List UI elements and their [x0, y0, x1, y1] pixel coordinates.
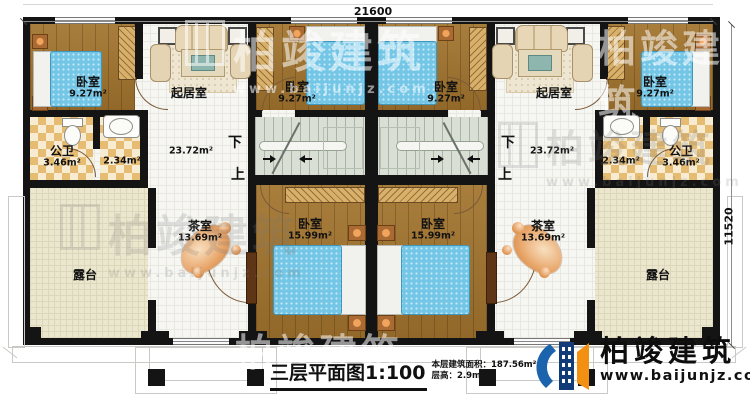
room-area-bedroom-large: 15.99m² — [411, 231, 455, 241]
stair-landing — [323, 127, 363, 169]
brand-block: 柏竣建筑 www.baijunjz.com — [536, 336, 750, 398]
armchair — [572, 44, 593, 82]
wall-pillar — [476, 331, 504, 345]
dimension-right-value: 11520 — [723, 202, 736, 252]
side-table — [566, 27, 585, 45]
title-block: 三层平面图1:100 本层建筑面积：187.56m² 层高：2.9m — [270, 358, 536, 391]
stair-label-up: 上 — [498, 168, 512, 182]
decor-pebble — [502, 245, 512, 255]
armchair — [230, 44, 251, 79]
room-area-bedroom-small-2: 9.27m² — [427, 94, 465, 104]
wall-bath-divider — [93, 117, 100, 149]
plan-area-note: 本层建筑面积：187.56m² — [431, 360, 536, 371]
room-label-bedroom-small: 卧室 — [643, 76, 667, 88]
wall-bedroom2-bottom-a — [248, 110, 262, 117]
stair-label-up: 上 — [231, 168, 245, 182]
stair-arrow-tail — [263, 158, 273, 160]
stair-arrow-tail — [302, 158, 312, 160]
room-label-bedroom-small-2: 卧室 — [434, 81, 458, 93]
armchair — [492, 44, 513, 79]
room-area-bedroom-small: 9.27m² — [636, 89, 674, 99]
room-area-bedroom-small: 9.27m² — [69, 89, 107, 99]
nightstand — [377, 315, 395, 331]
wall-bath-divider — [643, 117, 650, 149]
sink-basin — [610, 118, 634, 135]
brand-logo-glyph — [536, 336, 596, 398]
decor-pebble — [193, 267, 204, 278]
sink-basin — [109, 118, 133, 135]
nightstand — [377, 225, 395, 241]
side-table — [496, 27, 515, 45]
wall-bedroom-living — [600, 24, 608, 79]
stair-label-down: 下 — [228, 136, 242, 150]
stair-label-down: 下 — [501, 136, 515, 150]
room-area-tea: 13.69m² — [178, 233, 222, 243]
room-area-living: 23.72m² — [530, 146, 574, 156]
unit-left: 卧室 9.27m² 卧室 9.27m² 起居室 23.72m² 下 上 公卫 3… — [23, 17, 375, 345]
wall-pillar — [141, 331, 169, 345]
room-area-bedroom-small-2: 9.27m² — [278, 94, 316, 104]
bed — [273, 245, 342, 315]
brand-name: 柏竣建筑 — [600, 336, 750, 368]
wardrobe — [469, 27, 487, 91]
decor-pebble — [539, 267, 550, 278]
door-leaf — [246, 252, 257, 304]
wall-washroom-living — [140, 110, 148, 188]
unit-right: 卧室 9.27m² 卧室 9.27m² 起居室 23.72m² 下 上 公卫 3… — [368, 17, 720, 345]
room-label-bedroom-large: 卧室 — [298, 218, 322, 230]
room-area-washroom: 2.34m² — [602, 156, 640, 166]
nightstand — [289, 26, 305, 41]
dimension-line-top — [23, 21, 713, 22]
floor-plan-canvas: 卧室 9.27m² 卧室 9.27m² 起居室 23.72m² 下 上 公卫 3… — [0, 0, 750, 407]
nightstand — [695, 34, 711, 49]
wardrobe — [378, 187, 458, 203]
wall-tea-bedroom-upper — [248, 185, 256, 252]
bed-pillows — [377, 245, 403, 315]
room-label-bath: 公卫 — [50, 145, 74, 157]
eave-outline-left — [8, 196, 25, 348]
bed — [401, 245, 470, 315]
door-leaf — [486, 252, 497, 304]
wall-bedroom2-bottom-b — [378, 110, 448, 117]
nightstand — [32, 34, 48, 49]
side-table — [228, 27, 247, 45]
room-area-bath: 3.46m² — [662, 158, 700, 168]
wall-terrace-tea-upper — [587, 188, 595, 248]
wardrobe — [285, 187, 365, 203]
stair-arrow-tail — [431, 158, 441, 160]
room-label-bedroom-large: 卧室 — [421, 218, 445, 230]
wall-bath-bottom — [23, 180, 148, 188]
wall-washroom-living — [595, 110, 603, 188]
plan-height-note: 层高：2.9m — [431, 371, 536, 382]
room-area-bath: 3.46m² — [43, 158, 81, 168]
room-area-tea: 13.69m² — [521, 233, 565, 243]
wall-bedroom2-bottom-b — [295, 110, 365, 117]
coffee-table-top — [528, 55, 552, 71]
corner-pillar — [23, 327, 41, 345]
toilet-bowl — [662, 125, 679, 146]
wall-bath-bottom — [595, 180, 720, 188]
decor-pebble — [231, 245, 241, 255]
sofa — [175, 25, 228, 52]
wall-pillar — [239, 331, 267, 345]
bed-pillows — [691, 51, 710, 107]
room-label-tea: 茶室 — [188, 220, 212, 232]
stair-arrow-tail — [470, 158, 480, 160]
stair-landing — [380, 127, 420, 169]
dimension-top-value: 21600 — [345, 5, 401, 18]
room-label-bedroom-small: 卧室 — [76, 76, 100, 88]
wardrobe — [606, 26, 625, 80]
room-area-washroom: 2.34m² — [103, 156, 141, 166]
coffee-table-top — [191, 55, 215, 71]
armchair — [150, 44, 171, 82]
porch-pillar — [148, 369, 165, 386]
room-label-tea: 茶室 — [531, 220, 555, 232]
porch-pillar — [247, 369, 264, 386]
room-label-terrace: 露台 — [646, 269, 670, 281]
toilet-bowl — [64, 125, 81, 146]
terrace-floor — [30, 188, 148, 338]
room-label-terrace: 露台 — [73, 269, 97, 281]
wall-stairs-left — [488, 117, 495, 175]
porch-door — [173, 338, 229, 345]
wall-stairs-left — [248, 117, 255, 175]
terrace-floor — [595, 188, 713, 338]
nightstand — [348, 225, 366, 241]
wall-bedroom2-bottom-a — [481, 110, 495, 117]
dimension-line-right — [731, 24, 732, 346]
room-label-living: 起居室 — [171, 87, 207, 99]
wall-under-stairs — [378, 175, 495, 185]
wall-bedroom-living — [135, 24, 143, 79]
room-label-living: 起居室 — [536, 87, 572, 99]
wall-under-stairs — [248, 175, 365, 185]
brand-url: www.baijunjz.com — [600, 368, 750, 384]
plan-title: 三层平面图1:100 — [270, 358, 427, 391]
wardrobe — [256, 27, 274, 91]
bed-pillows — [340, 245, 366, 315]
wall-tea-bedroom-upper — [487, 185, 495, 252]
nightstand — [348, 315, 366, 331]
room-area-bedroom-large: 15.99m² — [288, 231, 332, 241]
room-label-bath: 公卫 — [669, 145, 693, 157]
room-label-bedroom-small-2: 卧室 — [285, 81, 309, 93]
sofa — [515, 25, 568, 52]
room-area-living: 23.72m² — [169, 146, 213, 156]
wall-terrace-tea-upper — [148, 188, 156, 248]
nightstand — [438, 26, 454, 41]
